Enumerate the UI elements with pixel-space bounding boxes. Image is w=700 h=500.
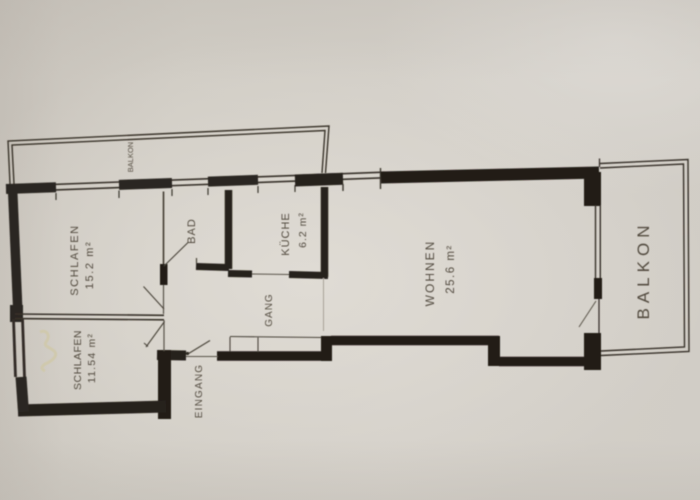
svg-text:BAD: BAD	[186, 218, 198, 244]
svg-text:GANG: GANG	[264, 293, 275, 326]
svg-text:SCHLAFEN: SCHLAFEN	[69, 224, 81, 295]
svg-text:SCHLAFEN: SCHLAFEN	[72, 330, 84, 390]
svg-text:6.2 m²: 6.2 m²	[297, 212, 309, 248]
svg-text:11.54 m²: 11.54 m²	[86, 333, 98, 383]
svg-text:BALKON: BALKON	[126, 142, 135, 172]
svg-text:15.2 m²: 15.2 m²	[84, 241, 96, 290]
svg-text:KÜCHE: KÜCHE	[280, 212, 292, 256]
svg-text:BALKON: BALKON	[634, 221, 653, 320]
svg-text:WOHNEN: WOHNEN	[423, 240, 437, 307]
svg-text:25.6 m²: 25.6 m²	[445, 244, 457, 294]
svg-text:EINGANG: EINGANG	[194, 364, 205, 419]
